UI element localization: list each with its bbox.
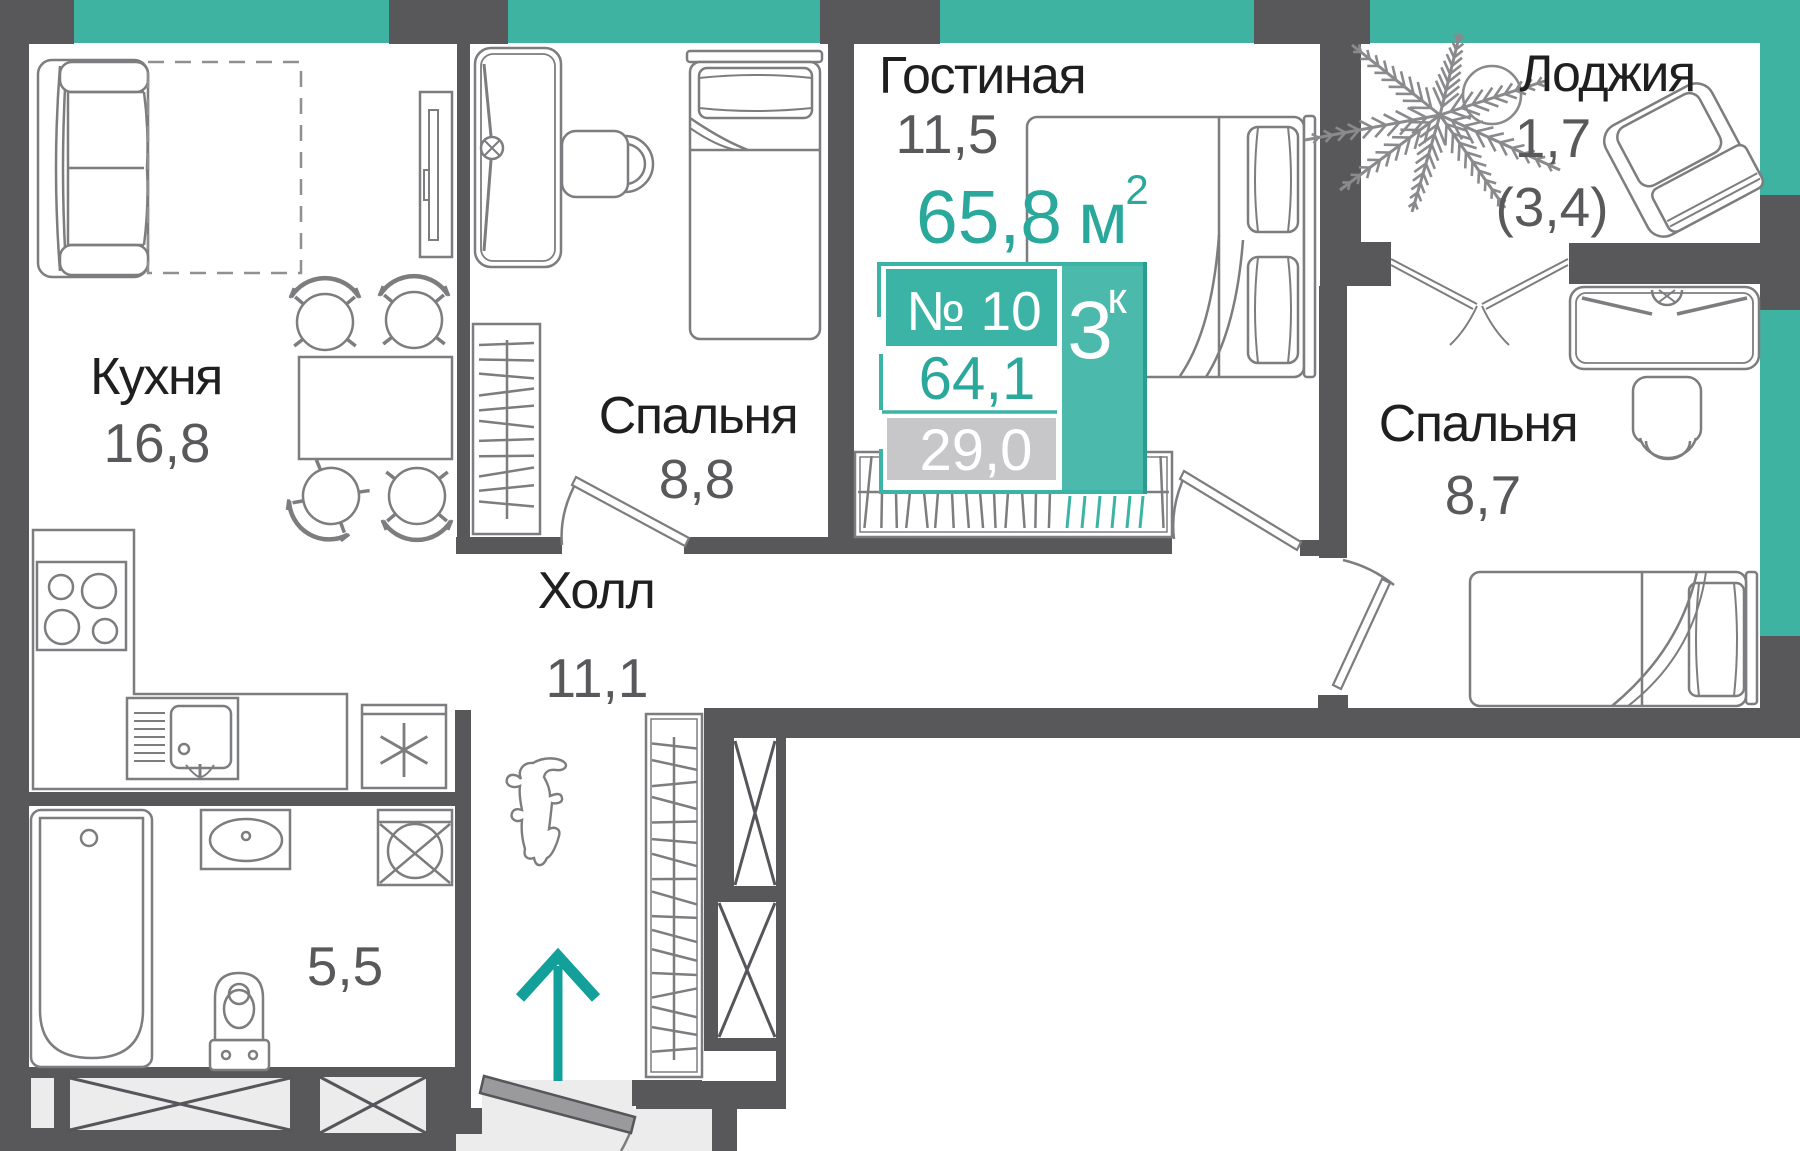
svg-text:16,8: 16,8 bbox=[103, 412, 210, 474]
svg-text:к: к bbox=[1107, 274, 1127, 323]
svg-text:2: 2 bbox=[1125, 166, 1148, 213]
svg-text:м: м bbox=[1078, 179, 1128, 259]
svg-text:Гостиная: Гостиная bbox=[879, 47, 1085, 105]
svg-text:Холл: Холл bbox=[538, 562, 655, 620]
svg-text:1,7: 1,7 bbox=[1515, 107, 1591, 169]
svg-text:11,5: 11,5 bbox=[896, 103, 999, 165]
svg-text:Лоджия: Лоджия bbox=[1519, 45, 1694, 103]
svg-text:Кухня: Кухня bbox=[90, 348, 222, 406]
svg-text:Спальня: Спальня bbox=[599, 387, 797, 445]
svg-text:5,5: 5,5 bbox=[307, 935, 383, 997]
svg-text:(3,4): (3,4) bbox=[1495, 176, 1608, 238]
svg-text:8,8: 8,8 bbox=[659, 448, 735, 510]
svg-text:65,8: 65,8 bbox=[916, 175, 1062, 259]
svg-text:3: 3 bbox=[1067, 285, 1113, 376]
svg-text:64,1: 64,1 bbox=[919, 345, 1036, 412]
svg-text:№ 10: № 10 bbox=[906, 280, 1041, 342]
svg-text:29,0: 29,0 bbox=[920, 418, 1033, 483]
svg-text:8,7: 8,7 bbox=[1445, 464, 1521, 526]
svg-text:Спальня: Спальня bbox=[1379, 395, 1577, 453]
svg-text:11,1: 11,1 bbox=[546, 647, 649, 709]
